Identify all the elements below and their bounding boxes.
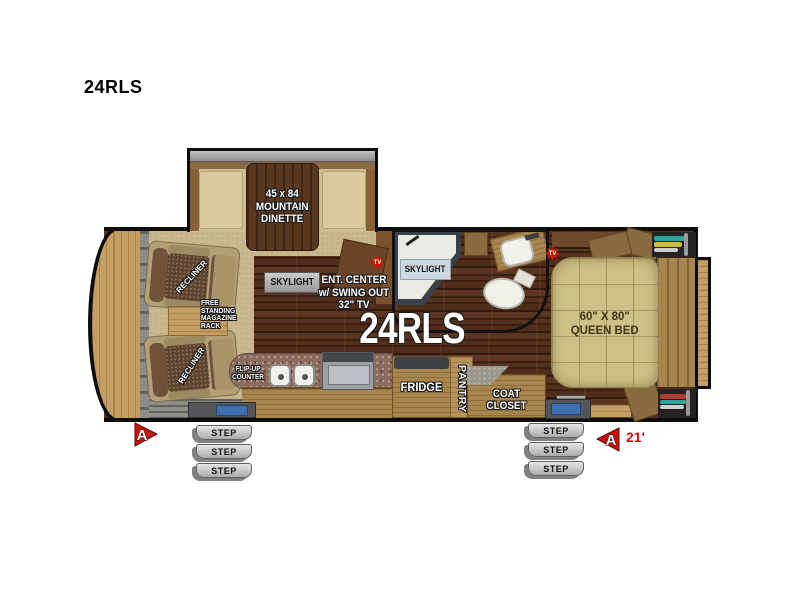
flip-up-line: COUNTER <box>231 374 266 382</box>
tv-icon-label: TV <box>549 251 557 257</box>
bed-line: 60" X 80" <box>571 309 639 323</box>
dinette-bench-left <box>199 171 243 229</box>
bathroom-shelf <box>464 232 488 256</box>
dinette-slide: 45 x 84 MOUNTAIN DINETTE <box>187 148 378 232</box>
page-title: 24RLS <box>84 77 143 98</box>
hanging-clothes <box>654 242 682 247</box>
coat-closet-line: COAT <box>471 388 542 400</box>
living-skylight-badge: SKYLIGHT <box>264 272 320 293</box>
sink-bowl <box>293 364 315 387</box>
magazine-rack-label: FREE STANDING MAGAZINE RACK <box>201 300 260 330</box>
bed-line: QUEEN BED <box>571 323 639 337</box>
arrow-a-right: A <box>594 425 624 453</box>
dinette-line: 45 x 84 <box>256 188 309 201</box>
step: STEP <box>196 425 252 440</box>
bedroom-slide-bump <box>695 257 711 389</box>
length-label: 21' <box>626 429 645 445</box>
dinette-line: MOUNTAIN <box>256 201 309 214</box>
hanging-clothes <box>654 248 678 252</box>
step-label: STEP <box>543 464 569 474</box>
arrow-letter: A <box>606 432 617 449</box>
step: STEP <box>528 442 584 457</box>
ent-center-line: w/ SWING OUT <box>314 287 393 300</box>
entry-rug-left <box>216 405 248 416</box>
step-label: STEP <box>211 466 237 476</box>
coat-closet-line: CLOSET <box>471 400 542 412</box>
flip-up-line: FLIP-UP <box>231 366 266 374</box>
headboard <box>656 257 696 388</box>
dinette-line: DINETTE <box>256 213 309 226</box>
bed-bench <box>586 404 632 418</box>
magazine-rack-line: MAGAZINE <box>201 315 260 323</box>
recliner-bottom: RECLINER <box>143 329 240 403</box>
magazine-rack-line: FREE <box>201 300 260 308</box>
bench-frame <box>190 169 199 231</box>
queen-bed: 60" X 80" QUEEN BED <box>551 257 659 388</box>
entry-steps-left: STEP STEP STEP <box>196 425 252 482</box>
living-skylight-label: SKYLIGHT <box>270 277 313 288</box>
floorplan-page: 24RLS RECLINER RECLINER FREE STANDING MA… <box>0 0 800 600</box>
entry-rug-right <box>551 403 581 415</box>
step: STEP <box>528 461 584 476</box>
closet-rod <box>686 390 690 416</box>
coat-closet-label: COAT CLOSET <box>471 388 542 412</box>
queen-bed-label: 60" X 80" QUEEN BED <box>571 309 639 337</box>
dinette-bench-right <box>322 171 366 229</box>
fridge-label: FRIDGE <box>394 381 448 394</box>
wardrobe-top <box>652 232 696 257</box>
sink-bowl <box>269 364 291 387</box>
arrow-a-left: A <box>130 420 160 448</box>
step-label: STEP <box>211 428 237 438</box>
hanging-clothes <box>660 405 684 409</box>
step: STEP <box>196 463 252 478</box>
step: STEP <box>196 444 252 459</box>
ent-center-line: ENT. CENTER <box>314 274 393 287</box>
model-callout: 24RLS <box>359 306 449 352</box>
step-label: STEP <box>211 447 237 457</box>
step: STEP <box>528 423 584 438</box>
stove <box>322 352 374 390</box>
tv-icon-label: TV <box>374 260 382 266</box>
fridge-top <box>394 357 449 369</box>
dinette-label: 45 x 84 MOUNTAIN DINETTE <box>256 188 309 226</box>
dinette-table: 45 x 84 MOUNTAIN DINETTE <box>246 163 319 251</box>
closet-rod <box>684 233 688 256</box>
hanging-clothes <box>660 400 687 404</box>
flip-up-counter-label: FLIP-UP COUNTER <box>231 366 266 381</box>
pantry-label: PANTRY <box>450 360 473 418</box>
arrow-letter: A <box>137 427 148 444</box>
step-label: STEP <box>543 445 569 455</box>
slide-window <box>190 151 375 162</box>
entry-steps-right: STEP STEP STEP <box>528 423 584 480</box>
bathroom-skylight-badge: SKYLIGHT <box>400 259 451 280</box>
wardrobe-bottom <box>658 389 696 418</box>
step-label: STEP <box>543 426 569 436</box>
bench-frame <box>366 169 375 231</box>
magazine-rack-line: RACK <box>201 323 260 331</box>
rear-wall-panel <box>114 231 140 418</box>
hanging-clothes <box>654 236 686 241</box>
bathroom-skylight-label: SKYLIGHT <box>405 264 446 275</box>
